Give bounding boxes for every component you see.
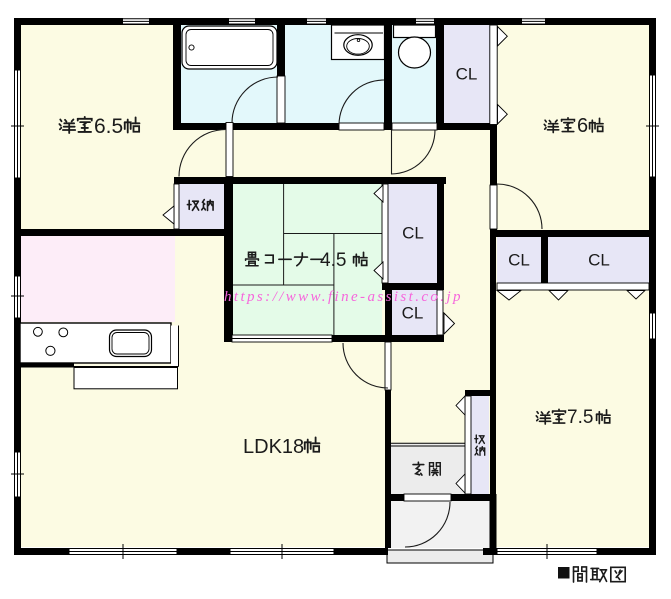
svg-text:6.5: 6.5 (94, 115, 123, 138)
svg-text:CL: CL (456, 65, 478, 84)
svg-text:CL: CL (402, 224, 424, 243)
svg-text:CL: CL (402, 304, 424, 323)
svg-text:4.5: 4.5 (320, 250, 346, 271)
svg-text:LDK18: LDK18 (243, 436, 304, 458)
svg-text:CL: CL (508, 251, 530, 270)
svg-text:https://www.fine-assist.co.jp: https://www.fine-assist.co.jp (224, 289, 463, 305)
svg-text:7.5: 7.5 (567, 407, 593, 428)
svg-text:6: 6 (577, 115, 588, 137)
svg-text:CL: CL (588, 251, 610, 270)
